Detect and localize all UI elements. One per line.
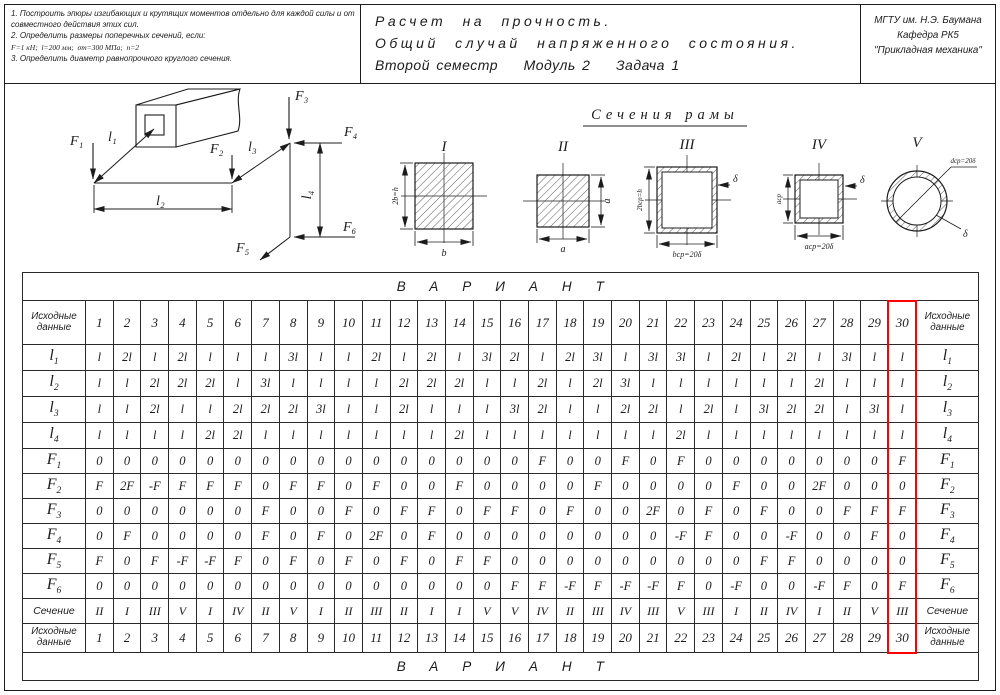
section-iii: III 2bср=h bср=20δ δ [636, 137, 738, 259]
value-cell: l [805, 423, 833, 449]
task-given-values: F=1 кН; l=200 мм; σт=300 МПа; n=2 [11, 43, 355, 53]
value-cell: 0 [418, 449, 446, 474]
row-label-base: F [47, 501, 57, 518]
value-cell: -F [778, 524, 806, 549]
row-label-base: F [940, 551, 950, 568]
row-label-F2: F2 [23, 474, 86, 499]
value-cell: 0 [445, 524, 473, 549]
section-iv-dim-width: aср=20δ [805, 242, 834, 251]
value-cell: l [390, 423, 418, 449]
variant-number: 28 [833, 301, 861, 345]
section-i-dim-width: b [442, 248, 447, 259]
force-label-f2: F₂ [209, 142, 224, 157]
variant-number: 29 [861, 301, 889, 345]
value-cell: 0 [113, 499, 141, 524]
value-cell: 0 [390, 524, 418, 549]
value-cell: 0 [473, 574, 501, 599]
value-cell: -F [612, 574, 640, 599]
variant-number: 27 [805, 301, 833, 345]
value-cell: F [252, 524, 280, 549]
value-cell: 0 [169, 449, 197, 474]
title-line-3: Второй семестр Модуль 2 Задача 1 [375, 54, 860, 76]
value-cell: l [750, 345, 778, 371]
sections-title: Сечения рамы [591, 107, 739, 123]
value-cell: 0 [888, 549, 916, 574]
section-cell: IV [529, 599, 557, 624]
value-cell: 0 [418, 474, 446, 499]
variant-number: 22 [667, 301, 695, 345]
variant-number: 18 [556, 301, 584, 345]
value-cell: 0 [612, 549, 640, 574]
value-cell: l [113, 397, 141, 423]
value-cell: F [861, 499, 889, 524]
section-cell: IV [612, 599, 640, 624]
value-cell: F [390, 549, 418, 574]
value-cell: 0 [196, 574, 224, 599]
value-cell: 2F [362, 524, 390, 549]
value-cell: l [556, 397, 584, 423]
value-cell: 2l [556, 345, 584, 371]
variant-number-highlighted: 30 [888, 624, 916, 653]
row-label-l2: l2 [916, 371, 978, 397]
value-cell: 0 [501, 474, 529, 499]
value-cell: l [335, 423, 363, 449]
value-cell: 0 [750, 524, 778, 549]
value-cell: 0 [584, 449, 612, 474]
value-cell: l [418, 423, 446, 449]
section-row-label: Сечение [23, 599, 86, 624]
value-cell: 0 [722, 524, 750, 549]
value-cell: 2l [418, 371, 446, 397]
value-cell: F [279, 474, 307, 499]
value-cell: l [612, 345, 640, 371]
section-cell: III [362, 599, 390, 624]
force-label-f1: F₁ [69, 134, 83, 149]
value-cell: 2l [805, 397, 833, 423]
title-line-2: Общий случай напряженного состояния. [375, 32, 860, 54]
section-iv-dim-height: aср [775, 193, 783, 204]
value-cell: 0 [279, 574, 307, 599]
row-label-sub: 6 [57, 586, 62, 596]
value-cell: 0 [584, 524, 612, 549]
value-cell: 0 [307, 449, 335, 474]
value-cell: 0 [695, 549, 723, 574]
variant-number: 21 [639, 301, 667, 345]
value-cell: 0 [224, 449, 252, 474]
value-cell: l [861, 371, 889, 397]
value-cell: 2l [224, 397, 252, 423]
variant-number: 12 [390, 301, 418, 345]
task-item-2: 2. Определить размеры поперечных сечений… [11, 31, 355, 42]
section-iii-wall-thickness: δ [733, 174, 738, 185]
variant-number: 15 [473, 301, 501, 345]
frame-sections: Сечения рамы I 2b=h b II [365, 85, 993, 271]
value-cell: 0 [750, 474, 778, 499]
variant-number: 16 [501, 301, 529, 345]
variants-table: ВАРИАНТИсходные данные123456789101112131… [22, 272, 979, 681]
value-cell: l [888, 345, 916, 371]
value-cell: 0 [141, 499, 169, 524]
row-label-base: F [47, 451, 57, 468]
row-label-F4: F4 [23, 524, 86, 549]
value-cell: 0 [252, 449, 280, 474]
row-label-l1: l1 [916, 345, 978, 371]
value-cell: 2l [501, 345, 529, 371]
value-cell: l [722, 371, 750, 397]
value-cell: F [556, 499, 584, 524]
variant-number: 24 [722, 624, 750, 653]
value-cell: 0 [418, 574, 446, 599]
force-label-f4: F₄ [343, 125, 358, 140]
data-row-F1: F10000000000000000F00F0F0000000FF1 [23, 449, 979, 474]
value-cell: 0 [362, 449, 390, 474]
value-cell: l [113, 371, 141, 397]
value-cell: l [778, 423, 806, 449]
value-cell: l [750, 423, 778, 449]
value-cell: 2l [252, 397, 280, 423]
variant-number: 8 [279, 624, 307, 653]
row-label-sub: 4 [950, 536, 955, 546]
org-line-3: "Прикладная механика" [861, 43, 995, 58]
section-cell: II [833, 599, 861, 624]
variant-number: 19 [584, 624, 612, 653]
value-cell: l [584, 397, 612, 423]
value-cell: l [529, 345, 557, 371]
value-cell: 0 [196, 499, 224, 524]
value-cell: 2F [113, 474, 141, 499]
variant-banner: ВАРИАНТ [23, 273, 979, 301]
variant-number: 25 [750, 624, 778, 653]
value-cell: F [279, 549, 307, 574]
value-cell: 2F [639, 499, 667, 524]
value-cell: F [888, 499, 916, 524]
value-cell: l [307, 345, 335, 371]
value-cell: l [584, 423, 612, 449]
value-cell: F [473, 549, 501, 574]
document-page: 1. Построить эпюры изгибающих и крутящих… [0, 0, 1000, 695]
section-iii-numeral: III [679, 137, 696, 153]
value-cell: 0 [501, 524, 529, 549]
value-cell: l [695, 345, 723, 371]
value-cell: 0 [196, 449, 224, 474]
value-cell: 0 [639, 524, 667, 549]
value-cell: 0 [445, 499, 473, 524]
value-cell: 3l [252, 371, 280, 397]
value-cell: 2l [113, 345, 141, 371]
variant-number: 28 [833, 624, 861, 653]
value-cell: 2l [667, 423, 695, 449]
value-cell: 0 [639, 449, 667, 474]
value-cell: F [445, 549, 473, 574]
value-cell: F [252, 499, 280, 524]
data-row-l2: l2ll2l2l2ll3lllll2l2l2lll2ll2l3lllllll2l… [23, 371, 979, 397]
value-cell: 2l [169, 371, 197, 397]
section-row-label: Сечение [916, 599, 978, 624]
value-cell: 0 [529, 549, 557, 574]
row-label-l3: l3 [23, 397, 86, 423]
value-cell: 2l [224, 423, 252, 449]
org-line-2: Кафедра РК5 [861, 28, 995, 43]
variant-number: 10 [335, 624, 363, 653]
variant-number: 1 [86, 301, 114, 345]
data-row-l1: l1l2ll2llll3lll2ll2ll3l2ll2l3ll3l3ll2ll2… [23, 345, 979, 371]
value-cell: 0 [335, 524, 363, 549]
row-label-sub: 2 [57, 486, 62, 496]
value-cell: F [169, 474, 197, 499]
section-ii-dim-width: a [561, 244, 566, 255]
value-cell: l [612, 423, 640, 449]
row-label-base: F [47, 576, 57, 593]
variant-number: 3 [141, 301, 169, 345]
section-v-dim-diameter: dср=20δ [950, 157, 976, 165]
variant-number: 5 [196, 624, 224, 653]
value-cell: 0 [805, 524, 833, 549]
value-cell: 0 [279, 449, 307, 474]
value-cell: l [473, 371, 501, 397]
value-cell: 3l [667, 345, 695, 371]
value-cell: l [418, 397, 446, 423]
row-label-F4: F4 [916, 524, 978, 549]
value-cell: 2l [141, 397, 169, 423]
data-row-F4: F40F0000F0F02F0F00000000-FF00-F00F0F4 [23, 524, 979, 549]
value-cell: 0 [86, 574, 114, 599]
section-cell: III [141, 599, 169, 624]
value-cell: F [113, 524, 141, 549]
section-cell: II [252, 599, 280, 624]
value-cell: l [86, 371, 114, 397]
value-cell: 0 [86, 499, 114, 524]
value-cell: l [888, 423, 916, 449]
section-cell: I [113, 599, 141, 624]
value-cell: 0 [612, 524, 640, 549]
data-row-l4: l4llll2l2llllllll2llllllll2llllllllll4 [23, 423, 979, 449]
variant-number: 11 [362, 624, 390, 653]
variant-number: 22 [667, 624, 695, 653]
variant-number: 26 [778, 301, 806, 345]
section-cell: III [888, 599, 916, 624]
value-cell: 0 [695, 449, 723, 474]
value-cell: 0 [86, 449, 114, 474]
value-cell: 0 [556, 449, 584, 474]
value-cell: 0 [888, 524, 916, 549]
row-label-l1: l1 [23, 345, 86, 371]
row-label-F1: F1 [23, 449, 86, 474]
row-label-sub: 5 [950, 561, 955, 571]
value-cell: 2l [612, 397, 640, 423]
value-cell: l [445, 345, 473, 371]
row-label-base: F [940, 476, 950, 493]
value-cell: 2l [722, 345, 750, 371]
variant-number: 20 [612, 624, 640, 653]
value-cell: l [695, 423, 723, 449]
section-cell: I [722, 599, 750, 624]
variant-number: 11 [362, 301, 390, 345]
frame-members [94, 129, 290, 237]
value-cell: F [584, 474, 612, 499]
length-label-l2: l₂ [156, 194, 165, 209]
task-list: 1. Построить эпюры изгибающих и крутящих… [5, 5, 360, 83]
value-cell: 3l [861, 397, 889, 423]
section-cell: I [445, 599, 473, 624]
value-cell: 0 [418, 549, 446, 574]
variant-number: 10 [335, 301, 363, 345]
section-cell: III [695, 599, 723, 624]
value-cell: 0 [888, 474, 916, 499]
value-cell: 0 [445, 449, 473, 474]
value-cell: 0 [778, 449, 806, 474]
row-label-l4: l4 [23, 423, 86, 449]
dimension-lines [94, 143, 320, 237]
value-cell: 0 [833, 449, 861, 474]
variant-numbers-row: Исходные данные1234567891011121314151617… [23, 301, 979, 345]
value-cell: l [86, 345, 114, 371]
value-cell: F [584, 574, 612, 599]
value-cell: 2l [390, 371, 418, 397]
value-cell: F [390, 499, 418, 524]
force-label-f6: F₆ [342, 220, 357, 235]
variant-number: 9 [307, 624, 335, 653]
value-cell: 0 [224, 499, 252, 524]
value-cell: l [722, 423, 750, 449]
value-cell: l [169, 423, 197, 449]
row-label-base: F [47, 476, 57, 493]
value-cell: 0 [722, 449, 750, 474]
value-cell: 2l [362, 345, 390, 371]
variant-number: 18 [556, 624, 584, 653]
value-cell: l [86, 397, 114, 423]
value-cell: 0 [362, 499, 390, 524]
value-cell: 0 [169, 574, 197, 599]
section-v-numeral: V [912, 135, 923, 151]
value-cell: F [86, 549, 114, 574]
value-cell: 0 [445, 574, 473, 599]
value-cell: l [224, 371, 252, 397]
row-label-l2: l2 [23, 371, 86, 397]
row-label-F2: F2 [916, 474, 978, 499]
value-cell: l [252, 423, 280, 449]
value-cell: F [501, 574, 529, 599]
value-cell: l [861, 345, 889, 371]
section-cell: II [556, 599, 584, 624]
value-cell: F [888, 449, 916, 474]
value-cell: -F [667, 524, 695, 549]
value-cell: 0 [224, 524, 252, 549]
value-cell: l [833, 423, 861, 449]
value-cell: 2l [390, 397, 418, 423]
value-cell: F [695, 524, 723, 549]
section-cell: V [279, 599, 307, 624]
value-cell: 0 [224, 574, 252, 599]
section-i-dim-height: 2b=h [391, 187, 400, 204]
value-cell: l [307, 423, 335, 449]
length-label-l3: l₃ [248, 140, 257, 155]
variant-banner-row-top: ВАРИАНТ [23, 273, 979, 301]
corner-label: Исходные данные [23, 624, 86, 653]
data-row-F3: F3000000F00F0FF0FF0F002F0F0F00FFFF3 [23, 499, 979, 524]
section-iii-dim-width: bср=20δ [673, 250, 702, 259]
value-cell: 2l [639, 397, 667, 423]
title-block: 1. Построить эпюры изгибающих и крутящих… [4, 4, 996, 84]
section-cell: I [805, 599, 833, 624]
value-cell: -F [169, 549, 197, 574]
row-label-base: F [940, 501, 950, 518]
value-cell: l [639, 423, 667, 449]
value-cell: F [529, 574, 557, 599]
value-cell: 0 [556, 524, 584, 549]
data-row-F5: F5F0F-F-FF0F0F0F0FF000000000FF0000F5 [23, 549, 979, 574]
force-label-f5: F₅ [235, 241, 250, 256]
value-cell: 2l [279, 397, 307, 423]
task-item-1: 1. Построить эпюры изгибающих и крутящих… [11, 9, 355, 30]
value-cell: 0 [390, 474, 418, 499]
row-label-F3: F3 [23, 499, 86, 524]
row-label-sub: 2 [947, 384, 952, 394]
value-cell: 0 [141, 449, 169, 474]
section-cell: V [667, 599, 695, 624]
row-label-sub: 6 [950, 586, 955, 596]
section-cell: II [750, 599, 778, 624]
value-cell: 0 [722, 549, 750, 574]
variant-number: 7 [252, 624, 280, 653]
value-cell: 0 [169, 499, 197, 524]
value-cell: l [805, 345, 833, 371]
value-cell: l [778, 371, 806, 397]
value-cell: 0 [307, 549, 335, 574]
section-ii-numeral: II [557, 139, 569, 155]
value-cell: 0 [307, 499, 335, 524]
value-cell: F [224, 549, 252, 574]
value-cell: -F [556, 574, 584, 599]
section-cell: III [584, 599, 612, 624]
value-cell: l [362, 397, 390, 423]
variant-number: 4 [169, 624, 197, 653]
value-cell: 0 [252, 549, 280, 574]
value-cell: F [335, 549, 363, 574]
row-label-base: F [940, 576, 950, 593]
row-label-sub: 2 [950, 486, 955, 496]
section-cell: I [196, 599, 224, 624]
value-cell: l [335, 397, 363, 423]
value-cell: l [667, 371, 695, 397]
value-cell: l [196, 345, 224, 371]
value-cell: 0 [805, 449, 833, 474]
value-cell: F [529, 449, 557, 474]
corner-label: Исходные данные [23, 301, 86, 345]
variant-number: 25 [750, 301, 778, 345]
value-cell: l [695, 371, 723, 397]
value-cell: 0 [390, 574, 418, 599]
section-cell: III [639, 599, 667, 624]
value-cell: F [750, 499, 778, 524]
value-cell: 0 [833, 549, 861, 574]
variant-number: 27 [805, 624, 833, 653]
value-cell: 2l [778, 345, 806, 371]
value-cell: 3l [750, 397, 778, 423]
row-label-sub: 1 [54, 358, 59, 368]
value-cell: 2l [141, 371, 169, 397]
value-cell: F [722, 474, 750, 499]
corner-label: Исходные данные [916, 301, 978, 345]
row-label-F6: F6 [916, 574, 978, 599]
frame-diagram: F₁ F₂ F₃ F₄ F₅ F₆ l₁ l₂ l₃ l₄ [8, 85, 364, 271]
row-label-sub: 3 [57, 511, 62, 521]
value-cell: l [335, 345, 363, 371]
length-label-l1: l₁ [108, 130, 117, 145]
variant-number: 16 [501, 624, 529, 653]
value-cell: 3l [279, 345, 307, 371]
variant-number: 6 [224, 301, 252, 345]
row-label-sub: 4 [54, 436, 59, 446]
